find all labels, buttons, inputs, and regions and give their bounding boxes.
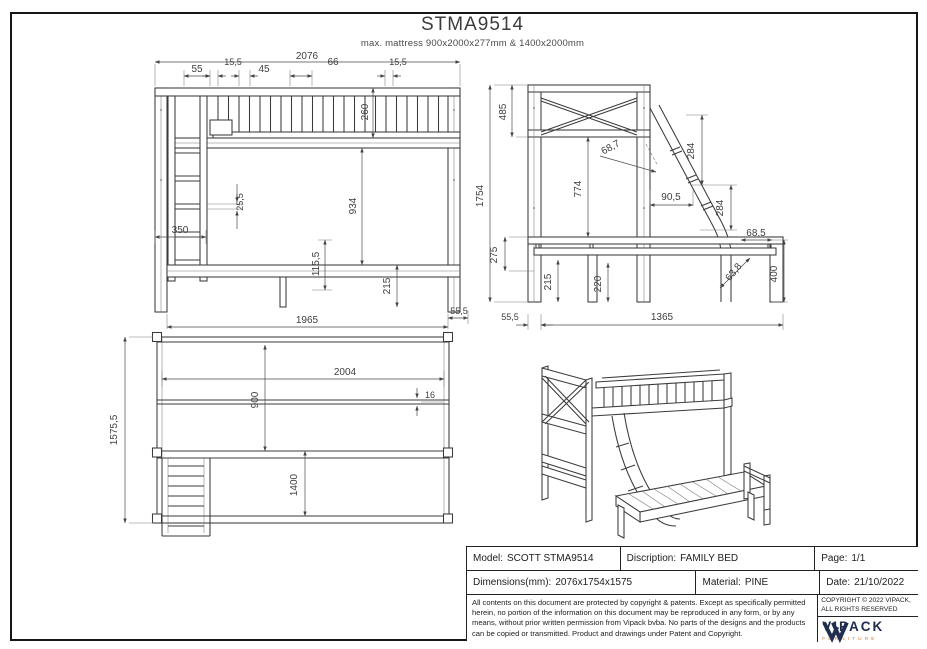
dim-frame-height: 275 <box>489 246 500 263</box>
side-dimensions: 1754 485 774 68,7 284 90,5 284 68,5 63,8… <box>475 85 788 330</box>
title-block-row-2: Dimensions(mm): 2076x1754x1575 Material:… <box>467 571 918 595</box>
brand-cell: COPYRIGHT © 2022 VIPACK, ALL RIGHTS RESE… <box>818 595 918 642</box>
dim-base-length: 1365 <box>651 312 674 323</box>
dim-slat-thickness: 16 <box>425 390 435 400</box>
dim-top-width: 900 <box>250 391 261 408</box>
title-block-row-1: Model: SCOTT STMA9514 Discription: FAMIL… <box>467 547 918 571</box>
dim-total-depth: 1575,5 <box>109 414 120 445</box>
plan-bed-drawing <box>153 333 453 537</box>
dim-pitch: 66 <box>327 57 339 68</box>
front-elevation-view: 2076 55 15,5 45 66 15,5 260 934 25,5 350… <box>140 50 470 340</box>
page-value: 1/1 <box>851 553 865 564</box>
dim-head-panel: 485 <box>498 103 509 120</box>
dim-slat-a: 15,5 <box>224 57 242 67</box>
description-cell: Discription: FAMILY BED <box>621 547 816 571</box>
dim-slat-b: 15,5 <box>389 57 407 67</box>
copyright-line1: COPYRIGHT © 2022 VIPACK, <box>821 597 911 604</box>
dim-support-height: 220 <box>593 275 604 292</box>
dim-total-height: 1754 <box>475 184 486 207</box>
dim-step-run: 90,5 <box>661 192 681 203</box>
copyright-note: COPYRIGHT © 2022 VIPACK, ALL RIGHTS RESE… <box>818 595 918 617</box>
dim-rail-height: 260 <box>360 103 371 120</box>
vipack-logo-icon <box>822 620 849 641</box>
dim-total-width: 2076 <box>296 51 319 62</box>
dim-ladder-width: 350 <box>172 225 189 236</box>
dim-rung-thickness: 25,5 <box>235 193 245 211</box>
dim-inner-length: 2004 <box>334 367 357 378</box>
title-block-row-3: All contents on this document are protec… <box>467 595 918 642</box>
dimensions-label: Dimensions(mm): <box>473 577 551 588</box>
isometric-view <box>512 352 772 552</box>
dim-step-b: 284 <box>715 199 726 216</box>
date-cell: Date: 21/10/2022 <box>820 571 918 595</box>
description-label: Discription: <box>627 553 676 564</box>
material-cell: Material: PINE <box>696 571 820 595</box>
drawing-sheet: STMA9514 max. mattress 900x2000x277mm & … <box>0 0 927 649</box>
model-value: SCOTT STMA9514 <box>507 553 594 564</box>
dim-platform-drop: 115,5 <box>311 251 322 276</box>
dim-leg-height: 215 <box>543 273 554 290</box>
front-bed-drawing <box>155 88 460 312</box>
side-bed-drawing <box>528 85 783 302</box>
description-value: FAMILY BED <box>680 553 738 564</box>
copyright-line2: ALL RIGHTS RESERVED <box>821 606 897 613</box>
legal-text: All contents on this document are protec… <box>467 595 818 642</box>
dim-post-offset: 55,5 <box>501 312 519 322</box>
model-label: Model: <box>473 553 503 564</box>
dim-gap: 45 <box>258 64 270 75</box>
dim-foot-height: 400 <box>769 265 780 282</box>
dim-ladder-angle: 68,7 <box>600 138 623 157</box>
dim-foot-angle: 63,8 <box>724 261 745 283</box>
dim-bottom-width: 1400 <box>289 473 300 496</box>
side-elevation-view: 1754 485 774 68,7 284 90,5 284 68,5 63,8… <box>450 48 795 348</box>
dimensions-value: 2076x1754x1575 <box>555 577 632 588</box>
brand-logo: VIPACK FURNITURE <box>818 617 918 641</box>
title-block: Model: SCOTT STMA9514 Discription: FAMIL… <box>466 546 918 641</box>
material-label: Material: <box>702 577 740 588</box>
drawing-header: STMA9514 max. mattress 900x2000x277mm & … <box>0 14 927 49</box>
model-cell: Model: SCOTT STMA9514 <box>467 547 621 571</box>
date-label: Date: <box>826 577 850 588</box>
dim-leg-height: 215 <box>382 277 393 294</box>
isometric-bed-drawing <box>542 366 770 538</box>
dim-step-a: 284 <box>686 142 697 159</box>
page-label: Page: <box>821 553 847 564</box>
dim-clearance: 774 <box>573 180 584 197</box>
page-cell: Page: 1/1 <box>815 547 918 571</box>
dim-clear-height: 934 <box>348 197 359 214</box>
date-value: 21/10/2022 <box>854 577 904 588</box>
dim-ladder-offset: 55 <box>191 64 203 75</box>
plan-view: 1575,5 2004 900 1400 16 <box>95 318 460 563</box>
material-value: PINE <box>745 577 768 588</box>
drawing-title: STMA9514 <box>18 14 927 36</box>
dimensions-cell: Dimensions(mm): 2076x1754x1575 <box>467 571 696 595</box>
dim-foot-offset: 68,5 <box>746 228 766 239</box>
